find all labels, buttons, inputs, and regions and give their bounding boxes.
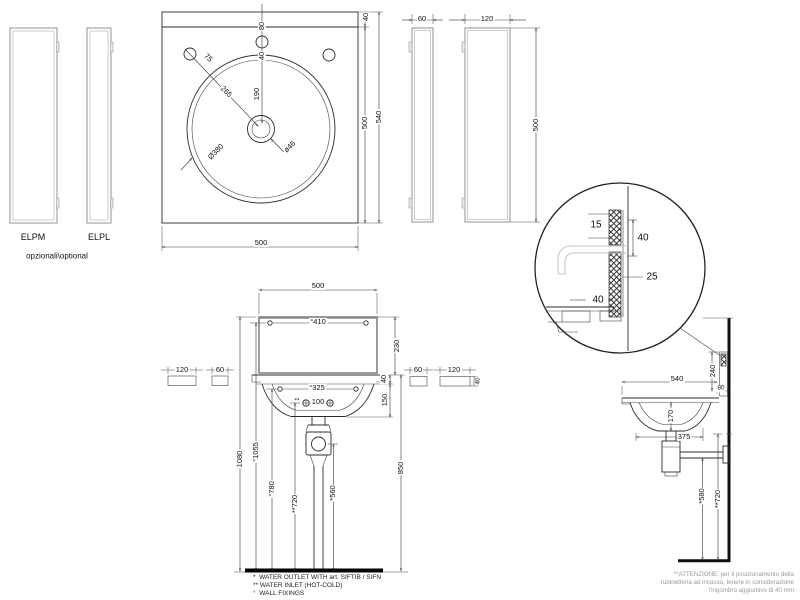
- dim-front-right-panel-40: 40: [476, 376, 483, 385]
- optional-caption: opzionali\optional: [25, 253, 89, 262]
- attention-note-line-3: l'ingombro aggiuntivo di 40 mm: [709, 587, 794, 595]
- detail-view-drawing: [535, 183, 722, 357]
- attention-note-line-2: rubinetteria ad incasso, tenere in consi…: [661, 579, 794, 587]
- dim-topview-500-depth: 500: [361, 116, 369, 131]
- dim-panel-120: 120: [480, 15, 495, 23]
- dim-front-1055: °1055: [252, 441, 260, 463]
- dim-detail-40-upper: 40: [636, 233, 649, 244]
- dim-front-40-rim: 40: [380, 374, 388, 384]
- dim-front-560: *560: [329, 484, 337, 501]
- attention-note-line-1: **ATTENZIONE: per il posizionamento dell…: [674, 571, 794, 579]
- dim-topview-540-total: 540: [375, 110, 383, 125]
- dim-front-left-panel-120: 120: [175, 366, 190, 374]
- dim-detail-40-lower: 40: [591, 295, 604, 306]
- dim-side-240: 240: [709, 364, 717, 379]
- dim-topview-40-hole: 40: [258, 51, 266, 61]
- dim-front-230: 230: [393, 339, 401, 354]
- washbasin-technical-drawing: ELPM ELPL opzionali\optional 80 40 190 7…: [0, 0, 800, 600]
- dim-topview-500-width: 500: [254, 239, 269, 247]
- dim-side-170: 170: [667, 409, 675, 424]
- elpl-label: ELPL: [87, 233, 111, 243]
- dim-detail-25: 25: [645, 272, 658, 283]
- dim-detail-15: 15: [589, 220, 602, 231]
- dim-front-500: 500: [311, 282, 326, 290]
- dim-front-100-prefix: **: [294, 399, 301, 406]
- dim-topview-80: 80: [258, 21, 266, 31]
- dim-side-80: 80: [716, 386, 725, 393]
- dim-panel-500: 500: [532, 118, 540, 133]
- top-view-drawing: [162, 4, 383, 251]
- optional-panels-front-drawing: [10, 28, 113, 223]
- dim-front-1080: 1080: [236, 450, 244, 469]
- dim-topview-40-ledge: 40: [362, 12, 370, 22]
- dim-front-right-panel-120: 120: [447, 366, 462, 374]
- footnote-wall-fixings: ° WALL FIXINGS: [253, 590, 304, 598]
- dim-front-720: **720: [291, 494, 299, 514]
- dim-front-100: 100: [311, 398, 326, 406]
- elpm-label: ELPM: [20, 233, 47, 243]
- dim-side-540: 540: [670, 375, 685, 383]
- dim-topview-190: 190: [253, 87, 261, 102]
- dim-side-720: **720: [714, 489, 722, 509]
- dim-front-325: °325: [308, 384, 326, 392]
- dim-panel-60: 60: [417, 15, 427, 23]
- dim-front-right-panel-60: 60: [413, 366, 423, 374]
- optional-panels-side-drawing: [402, 14, 540, 222]
- dim-front-left-panel-60: 60: [215, 366, 225, 374]
- dim-side-375: 375: [677, 433, 692, 441]
- dim-front-850: 850: [397, 461, 405, 476]
- dim-front-150: 150: [381, 393, 389, 408]
- dim-front-780: °780: [268, 480, 276, 498]
- dim-front-410: °410: [309, 318, 327, 326]
- dim-side-580: *580: [698, 487, 706, 504]
- front-view-drawing: [161, 290, 478, 572]
- drawing-linework: [0, 0, 800, 600]
